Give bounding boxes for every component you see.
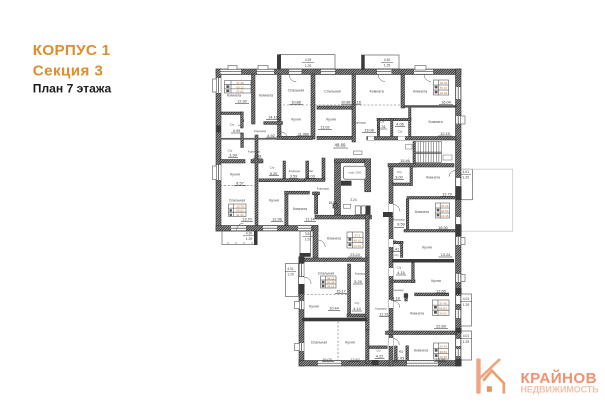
svg-text:3.99: 3.99 [229,154,236,158]
svg-text:12.98: 12.98 [272,218,282,222]
svg-text:лифт 1000: лифт 1000 [348,171,361,175]
svg-text:НЕДВИЖИМОСТЬ: НЕДВИЖИМОСТЬ [521,384,600,394]
svg-text:5.20: 5.20 [270,172,277,176]
svg-text:С/у: С/у [228,148,233,152]
svg-text:13.08: 13.08 [364,128,374,132]
svg-text:КШ: КШ [308,169,313,173]
svg-text:1.29: 1.29 [287,273,294,277]
svg-text:Комната: Комната [293,207,307,211]
svg-text:Комната: Комната [413,89,427,93]
svg-text:25.29: 25.29 [441,204,449,208]
svg-text:Кухня: Кухня [269,198,279,202]
svg-text:С/у: С/у [230,123,235,127]
svg-text:4.18: 4.18 [392,296,399,300]
svg-text:Коридор: Коридор [354,121,366,125]
svg-text:КШ: КШ [399,350,404,354]
svg-text:2.03: 2.03 [397,357,404,361]
svg-text:Спальная: Спальная [229,198,245,202]
svg-text:3.81: 3.81 [305,232,312,236]
svg-text:4.01: 4.01 [463,297,470,301]
svg-text:Комната: Комната [327,237,341,241]
svg-text:Секция 3: Секция 3 [33,63,103,80]
svg-text:12.15: 12.15 [440,132,450,136]
svg-text:48.69: 48.69 [335,143,347,148]
svg-text:20.65: 20.65 [439,355,447,359]
svg-text:57.47: 57.47 [440,86,448,90]
svg-text:С/у: С/у [380,120,385,124]
svg-text:16.03: 16.03 [322,358,332,362]
svg-text:4.15: 4.15 [397,271,404,275]
svg-text:Комната: Комната [227,93,241,97]
svg-text:4.01: 4.01 [463,334,470,338]
svg-text:4.14: 4.14 [353,307,360,311]
svg-text:10.88 17.16: 10.88 17.16 [341,101,361,105]
svg-text:Кухня: Кухня [345,341,355,345]
svg-text:27.61: 27.61 [236,90,244,94]
svg-text:11.31: 11.31 [379,313,388,317]
svg-text:Кухня: Кухня [422,245,432,249]
svg-text:11.02: 11.02 [320,125,329,129]
svg-text:План 7 этажа: План 7 этажа [33,82,112,96]
svg-text:10.44: 10.44 [329,306,339,310]
svg-text:Кухня: Кухня [291,118,301,122]
svg-text:С/у: С/у [397,170,402,174]
svg-text:Комната: Комната [426,176,440,180]
svg-text:4.29: 4.29 [305,58,312,62]
svg-text:4.22: 4.22 [376,354,383,358]
svg-text:8.57: 8.57 [236,181,243,185]
svg-text:34.16: 34.16 [327,285,335,289]
svg-text:Спальная: Спальная [324,89,340,93]
svg-text:Коридор: Коридор [355,272,366,276]
svg-text:23.03: 23.03 [354,244,362,248]
svg-text:Комната: Комната [370,89,384,93]
svg-text:64.83: 64.83 [439,307,447,311]
svg-text:19.46: 19.46 [441,214,449,218]
svg-text:16.04: 16.04 [441,100,451,104]
svg-text:30.62: 30.62 [439,312,447,316]
svg-text:1.29: 1.29 [462,175,469,179]
svg-text:12.79: 12.79 [442,193,452,197]
svg-text:5.26: 5.26 [354,280,361,284]
svg-text:12.30: 12.30 [237,100,247,104]
svg-text:2.31: 2.31 [378,125,385,129]
svg-text:4.01: 4.01 [287,267,294,271]
svg-text:4.92: 4.92 [267,134,274,138]
svg-text:22.89: 22.89 [436,325,446,329]
svg-text:1.25: 1.25 [463,340,470,344]
svg-text:1.29: 1.29 [305,64,312,68]
svg-text:45.50: 45.50 [441,209,449,213]
svg-text:24.04: 24.04 [440,91,448,95]
svg-text:Коридор: Коридор [254,129,266,133]
svg-text:С/у: С/у [397,266,402,270]
svg-text:С/у: С/у [394,253,399,257]
svg-text:10.88: 10.88 [291,100,301,104]
svg-text:48.10: 48.10 [354,239,362,243]
svg-text:15.17: 15.17 [336,289,346,293]
svg-text:25.44: 25.44 [439,345,447,349]
svg-text:Коридор: Коридор [317,187,329,191]
svg-text:16.30: 16.30 [438,226,448,230]
svg-text:36.04: 36.04 [440,81,448,85]
svg-text:38.84: 38.84 [439,350,447,354]
svg-text:11.060: 11.060 [298,132,309,136]
svg-text:12.62: 12.62 [350,358,360,362]
svg-text:12.65: 12.65 [436,290,446,294]
svg-text:9.59: 9.59 [397,223,404,227]
svg-text:15.46: 15.46 [400,159,410,163]
svg-text:3.59: 3.59 [290,175,297,179]
svg-text:Спальная: Спальная [311,341,327,345]
svg-text:4.30: 4.30 [384,58,391,62]
svg-text:4.06: 4.06 [396,123,403,127]
svg-text:Комната: Комната [414,349,428,353]
svg-text:37.45: 37.45 [439,301,447,305]
svg-text:Комната: Комната [429,120,443,124]
svg-text:15.14: 15.14 [329,201,337,205]
svg-text:Кухня: Кухня [326,118,336,122]
svg-text:Комната: Комната [415,210,429,214]
svg-text:11.14: 11.14 [305,218,314,222]
svg-text:С/у: С/у [355,301,360,305]
svg-text:1.29: 1.29 [384,64,391,68]
svg-text:31.26: 31.26 [236,213,244,217]
svg-text:13.70: 13.70 [242,218,252,222]
svg-text:Кухня: Кухня [309,305,319,309]
svg-text:37.6: 37.6 [354,233,360,237]
svg-text:4.30: 4.30 [246,232,253,236]
svg-text:Коридор: Коридор [392,288,404,292]
svg-text:2.03: 2.03 [307,175,314,179]
svg-text:2.24: 2.24 [350,198,356,202]
svg-text:4.01: 4.01 [462,170,469,174]
svg-text:1.91: 1.91 [305,238,312,242]
svg-text:Спальная: Спальная [318,272,334,276]
svg-text:4.99: 4.99 [233,129,240,133]
svg-text:Кухня: Кухня [431,279,441,283]
svg-text:С/у: С/у [376,349,381,353]
svg-text:1.29: 1.29 [463,303,470,307]
svg-text:2.41: 2.41 [392,248,399,252]
svg-text:С/у: С/у [270,165,275,169]
svg-text:Комната: Комната [410,312,424,316]
svg-text:Коридор: Коридор [393,218,405,222]
svg-text:Кухня: Кухня [230,172,240,176]
svg-text:Коридор: Коридор [289,169,301,173]
svg-text:14.16: 14.16 [268,116,278,120]
svg-text:3.99: 3.99 [254,154,261,158]
svg-text:КОРПУС 1: КОРПУС 1 [33,42,111,59]
svg-text:Спальная: Спальная [288,88,304,92]
svg-text:Коридор: Коридор [375,307,387,311]
svg-text:Комната: Комната [259,93,273,97]
svg-text:1.29: 1.29 [246,237,253,241]
svg-text:С/у: С/у [398,130,403,134]
svg-text:3.00: 3.00 [395,176,402,180]
svg-text:13.24: 13.24 [441,253,451,257]
svg-text:23.24: 23.24 [350,253,360,257]
svg-text:Коридор: Коридор [248,149,260,153]
